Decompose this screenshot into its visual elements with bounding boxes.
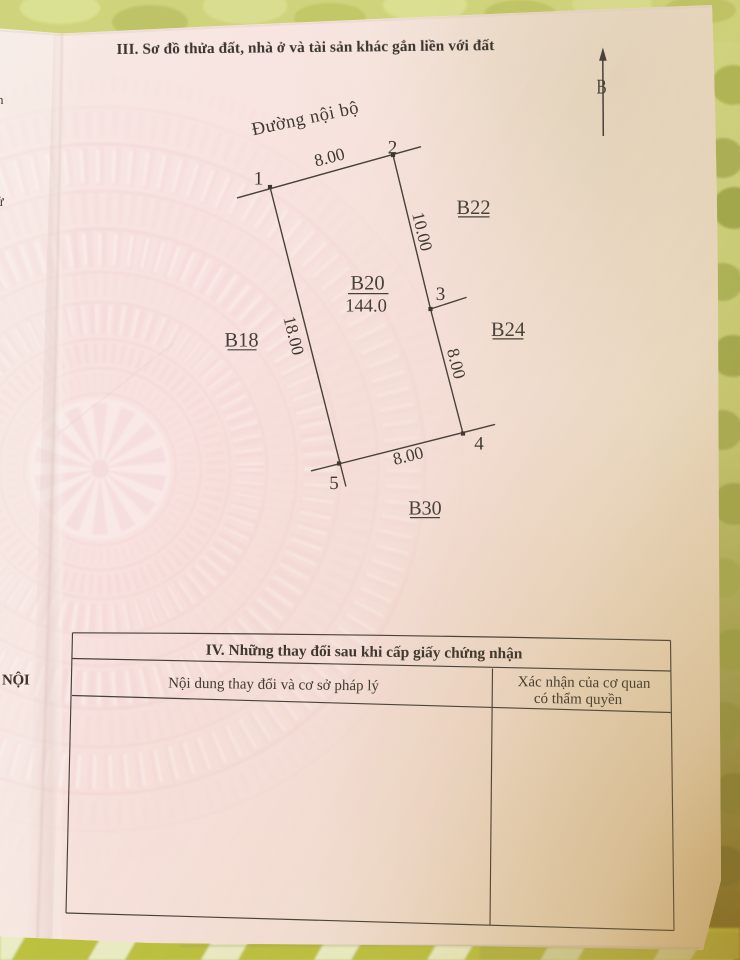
svg-text:B30: B30 bbox=[408, 498, 441, 520]
svg-text:n: n bbox=[0, 92, 4, 107]
svg-text:B24: B24 bbox=[491, 319, 525, 341]
svg-text:NỘI: NỘI bbox=[2, 671, 30, 689]
svg-text:Nội dung thay đổi và cơ sở phá: Nội dung thay đổi và cơ sở pháp lý bbox=[168, 676, 380, 695]
svg-text:B20: B20 bbox=[350, 273, 384, 295]
svg-text:B22: B22 bbox=[456, 197, 490, 219]
svg-text:3: 3 bbox=[436, 284, 446, 305]
svg-text:ử: ử bbox=[0, 195, 4, 210]
svg-text:1: 1 bbox=[254, 169, 264, 190]
svg-text:4: 4 bbox=[474, 434, 484, 455]
svg-text:5: 5 bbox=[329, 473, 339, 494]
svg-text:144.0: 144.0 bbox=[345, 297, 387, 317]
svg-text:B: B bbox=[597, 75, 607, 99]
svg-text:có thẩm quyền: có thẩm quyền bbox=[534, 691, 623, 708]
svg-text:2: 2 bbox=[388, 138, 398, 159]
svg-text:B18: B18 bbox=[224, 330, 258, 352]
svg-text:Xác nhận của cơ quan: Xác nhận của cơ quan bbox=[518, 674, 652, 692]
